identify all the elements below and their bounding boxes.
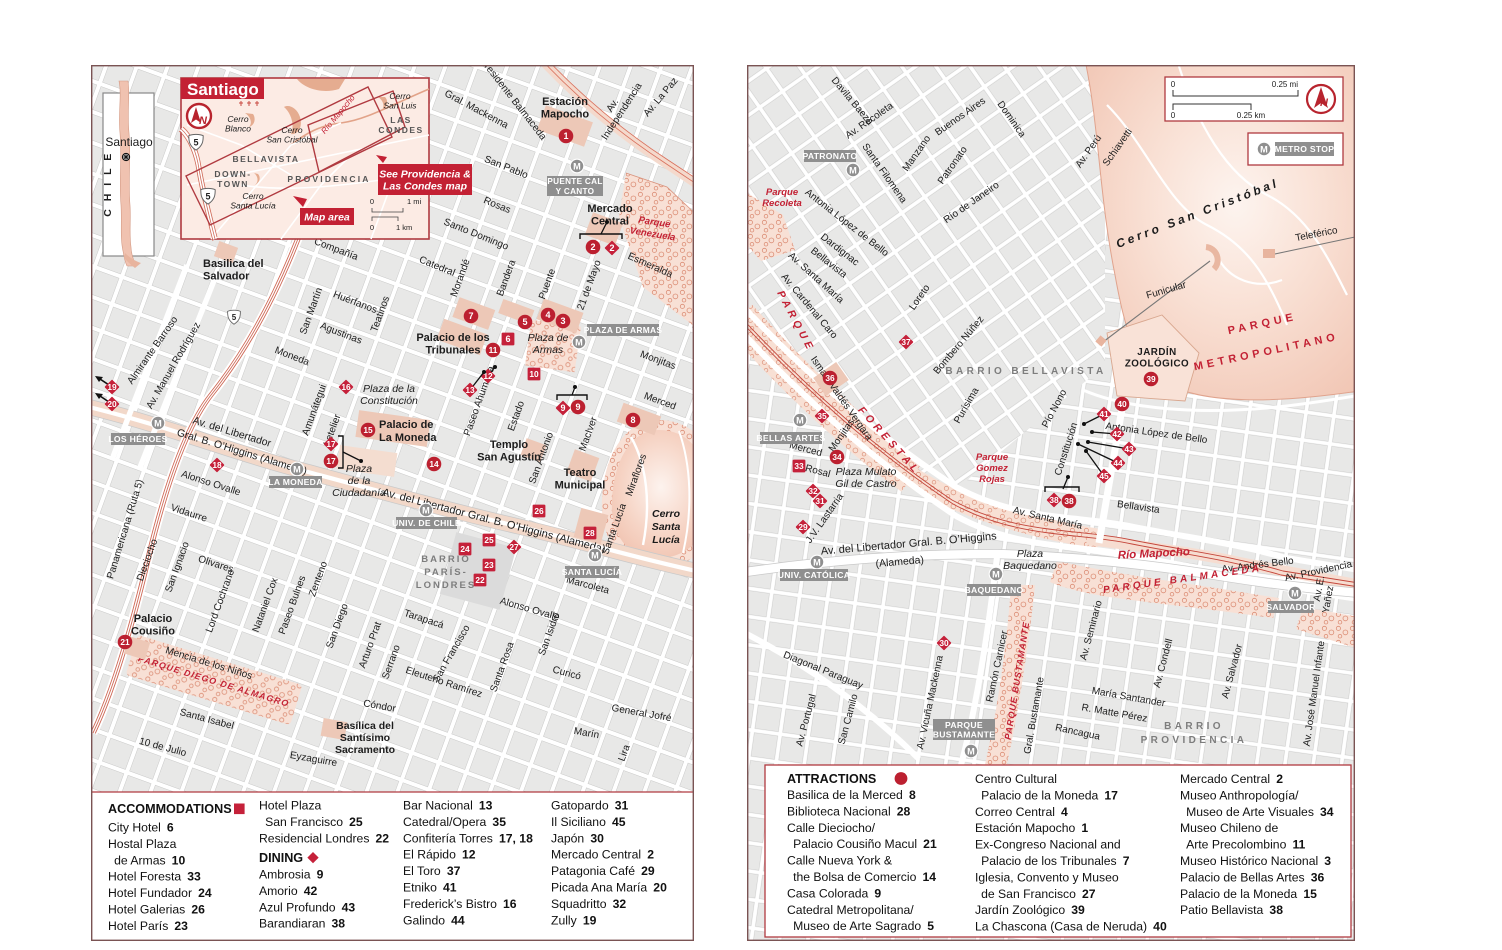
svg-text:Hotel Foresta 33: Hotel Foresta 33 <box>108 870 201 884</box>
svg-text:de Armas 10: de Armas 10 <box>108 853 185 867</box>
svg-text:Catedral/Opera 35: Catedral/Opera 35 <box>403 815 506 829</box>
svg-text:Las Condes map: Las Condes map <box>383 180 468 192</box>
svg-text:14: 14 <box>429 459 439 469</box>
svg-text:El Rápido 12: El Rápido 12 <box>403 848 476 862</box>
svg-text:5: 5 <box>193 137 198 147</box>
svg-text:M: M <box>849 165 857 175</box>
svg-text:M: M <box>796 415 804 425</box>
svg-text:Basílica delSantísimoSacrament: Basílica delSantísimoSacramento <box>335 720 395 756</box>
svg-text:22: 22 <box>475 575 485 585</box>
svg-text:0: 0 <box>370 197 374 206</box>
svg-text:1: 1 <box>563 131 568 141</box>
svg-text:LOS HÉROES: LOS HÉROES <box>108 434 167 444</box>
svg-text:M: M <box>967 746 975 756</box>
svg-text:43: 43 <box>1124 444 1134 454</box>
svg-text:Hostal Plaza: Hostal Plaza <box>108 837 177 851</box>
svg-text:BELLAS ARTES: BELLAS ARTES <box>756 433 825 443</box>
svg-text:Jardín Zoológico 39: Jardín Zoológico 39 <box>975 903 1085 917</box>
svg-text:Basilica de la Merced 8: Basilica de la Merced 8 <box>787 788 916 802</box>
svg-text:0: 0 <box>1171 111 1176 120</box>
svg-text:Hotel Plaza: Hotel Plaza <box>259 799 322 813</box>
svg-text:Ex-Congreso Nacional and: Ex-Congreso Nacional and <box>975 838 1121 852</box>
svg-text:BELLAVISTA: BELLAVISTA <box>232 154 299 164</box>
svg-text:23: 23 <box>484 560 494 570</box>
svg-text:39: 39 <box>1146 374 1156 384</box>
svg-text:17: 17 <box>326 439 336 449</box>
svg-text:Catedral Metropolitana/: Catedral Metropolitana/ <box>787 903 914 917</box>
svg-text:4: 4 <box>545 310 550 320</box>
svg-text:2: 2 <box>590 242 595 252</box>
svg-text:2: 2 <box>609 243 614 253</box>
svg-text:7: 7 <box>468 311 473 321</box>
svg-text:38: 38 <box>1049 495 1059 505</box>
svg-text:Barandiaran 38: Barandiaran 38 <box>259 917 345 931</box>
svg-text:Il Siciliano 45: Il Siciliano 45 <box>551 815 626 829</box>
svg-text:38: 38 <box>1064 496 1074 506</box>
svg-text:Estación Mapocho 1: Estación Mapocho 1 <box>975 821 1088 835</box>
svg-text:Patio Bellavista 38: Patio Bellavista 38 <box>1180 903 1283 917</box>
svg-text:PROVIDENCIA: PROVIDENCIA <box>287 174 370 184</box>
svg-text:35: 35 <box>817 411 827 421</box>
svg-text:Palacio de la Moneda 17: Palacio de la Moneda 17 <box>975 788 1118 802</box>
svg-text:BUSTAMANTE: BUSTAMANTE <box>933 729 996 739</box>
svg-text:M: M <box>591 550 599 560</box>
svg-text:M: M <box>1291 588 1299 598</box>
svg-text:El Toro 37: El Toro 37 <box>403 864 461 878</box>
svg-text:31: 31 <box>815 496 825 506</box>
svg-text:Plaza deArmas: Plaza deArmas <box>528 332 569 356</box>
svg-text:21: 21 <box>120 637 130 647</box>
svg-text:CerroBlanco: CerroBlanco <box>225 114 251 134</box>
svg-text:Palacio deLa Moneda: Palacio deLa Moneda <box>379 419 437 444</box>
svg-text:Y CANTO: Y CANTO <box>556 187 595 196</box>
svg-text:Hotel Fundador 24: Hotel Fundador 24 <box>108 886 212 900</box>
svg-text:32: 32 <box>808 486 818 496</box>
svg-text:Azul Profundo 43: Azul Profundo 43 <box>259 900 355 914</box>
svg-text:29: 29 <box>798 522 808 532</box>
svg-text:Santiago: Santiago <box>105 135 153 149</box>
svg-text:44: 44 <box>1113 458 1123 468</box>
svg-text:40: 40 <box>1117 399 1127 409</box>
svg-text:9: 9 <box>560 403 565 413</box>
svg-text:M: M <box>293 464 301 474</box>
svg-text:Japón 30: Japón 30 <box>551 831 604 845</box>
svg-text:Amorio 42: Amorio 42 <box>259 884 317 898</box>
svg-text:10: 10 <box>529 369 539 379</box>
svg-text:Palacio de la Moneda 15: Palacio de la Moneda 15 <box>1180 887 1317 901</box>
svg-text:ParqueGomezRojas: ParqueGomezRojas <box>976 452 1009 485</box>
svg-text:BARRIO BELLAVISTA: BARRIO BELLAVISTA <box>945 366 1106 377</box>
svg-text:Frederick’s Bistro 16: Frederick’s Bistro 16 <box>403 897 517 911</box>
svg-text:CerroSantaLucía: CerroSantaLucía <box>652 508 681 546</box>
svg-text:Calle Nueva York &: Calle Nueva York & <box>787 854 892 868</box>
svg-text:Zully 19: Zully 19 <box>551 913 597 927</box>
svg-text:Correo Central 4: Correo Central 4 <box>975 805 1068 819</box>
svg-text:Map area: Map area <box>304 211 350 223</box>
svg-text:LA MONEDA: LA MONEDA <box>268 477 322 487</box>
svg-text:19: 19 <box>107 382 117 392</box>
svg-text:28: 28 <box>585 528 595 538</box>
svg-text:EstaciónMapocho: EstaciónMapocho <box>541 96 590 121</box>
svg-text:Calle Dieciocho/: Calle Dieciocho/ <box>787 821 876 835</box>
svg-text:11: 11 <box>489 345 498 355</box>
svg-text:9: 9 <box>575 402 580 412</box>
svg-text:6: 6 <box>505 334 510 344</box>
svg-text:Hotel Galerias 26: Hotel Galerias 26 <box>108 903 205 917</box>
svg-text:PUENTE CAL: PUENTE CAL <box>547 177 602 186</box>
svg-text:Residencial Londres 22: Residencial Londres 22 <box>259 831 389 845</box>
svg-text:BAQUEDANO: BAQUEDANO <box>964 585 1023 595</box>
svg-text:25: 25 <box>484 535 494 545</box>
svg-text:Biblioteca Nacional 28: Biblioteca Nacional 28 <box>787 804 911 818</box>
svg-text:37: 37 <box>901 337 911 347</box>
svg-text:M: M <box>575 337 583 347</box>
svg-text:Palacio Cousiño Macul 21: Palacio Cousiño Macul 21 <box>787 837 937 851</box>
svg-text:Palacio de losTribunales: Palacio de losTribunales <box>416 332 489 357</box>
svg-text:Casa Colorada 9: Casa Colorada 9 <box>787 886 881 900</box>
svg-text:SALVADOR: SALVADOR <box>1266 602 1316 612</box>
svg-text:Museo Chileno de: Museo Chileno de <box>1180 821 1278 835</box>
svg-text:27: 27 <box>509 542 519 552</box>
svg-text:Gatopardo 31: Gatopardo 31 <box>551 799 628 813</box>
svg-text:0: 0 <box>370 223 374 232</box>
svg-text:UNIV. DE CHILE: UNIV. DE CHILE <box>392 518 461 528</box>
svg-text:18: 18 <box>212 460 222 470</box>
svg-text:ATTRACTIONS: ATTRACTIONS <box>787 772 876 786</box>
svg-text:N: N <box>199 115 208 127</box>
svg-text:5: 5 <box>522 317 527 327</box>
svg-text:0.25 mi: 0.25 mi <box>1272 80 1298 89</box>
svg-text:8: 8 <box>630 415 635 425</box>
svg-text:Confitería Torres 17, 18: Confitería Torres 17, 18 <box>403 831 533 845</box>
svg-text:Palacio de los Tribunales 7: Palacio de los Tribunales 7 <box>975 854 1130 868</box>
svg-text:Santiago: Santiago <box>187 80 259 99</box>
svg-text:BARRIOPARÍS-LONDRES: BARRIOPARÍS-LONDRES <box>416 554 476 591</box>
svg-text:36: 36 <box>825 373 835 383</box>
svg-text:Mercado Central 2: Mercado Central 2 <box>1180 772 1283 786</box>
svg-text:M: M <box>422 505 430 515</box>
svg-text:PATRONATO: PATRONATO <box>802 151 857 161</box>
svg-text:the Bolsa de Comercio 14: the Bolsa de Comercio 14 <box>787 870 936 884</box>
svg-text:16: 16 <box>341 382 351 392</box>
svg-text:PLAZA DE ARMAS: PLAZA DE ARMAS <box>584 325 663 335</box>
svg-text:M: M <box>813 557 821 567</box>
svg-text:30: 30 <box>939 638 949 648</box>
svg-text:Patagonia Café 29: Patagonia Café 29 <box>551 864 655 878</box>
svg-text:Mercado Central 2: Mercado Central 2 <box>551 848 654 862</box>
svg-text:Ambrosia 9: Ambrosia 9 <box>259 868 324 882</box>
svg-text:de San Francisco 27: de San Francisco 27 <box>975 887 1096 901</box>
svg-text:La Chascona (Casa de Neruda) 4: La Chascona (Casa de Neruda) 40 <box>975 920 1167 934</box>
svg-text:41: 41 <box>1099 409 1109 419</box>
svg-text:Arte Precolombino 11: Arte Precolombino 11 <box>1180 838 1306 852</box>
svg-text:5: 5 <box>205 191 210 201</box>
svg-text:Palacio de Bellas Artes 36: Palacio de Bellas Artes 36 <box>1180 870 1325 884</box>
svg-text:24: 24 <box>460 544 470 554</box>
svg-text:3: 3 <box>560 316 565 326</box>
svg-text:1 mi: 1 mi <box>407 197 422 206</box>
svg-text:M: M <box>992 569 1000 579</box>
svg-text:Etniko 41: Etniko 41 <box>403 881 457 895</box>
svg-text:45: 45 <box>1099 471 1109 481</box>
svg-text:17: 17 <box>326 456 336 466</box>
svg-text:0: 0 <box>1171 80 1176 89</box>
svg-text:Centro Cultural: Centro Cultural <box>975 772 1057 786</box>
svg-text:15: 15 <box>363 425 373 435</box>
svg-text:Museo de Arte Visuales 34: Museo de Arte Visuales 34 <box>1180 805 1334 819</box>
svg-text:C H I L E: C H I L E <box>102 151 114 216</box>
svg-text:San Francisco 25: San Francisco 25 <box>259 815 363 829</box>
svg-text:0.25 km: 0.25 km <box>1237 111 1266 120</box>
svg-text:Picada Ana María 20: Picada Ana María 20 <box>551 881 667 895</box>
svg-text:Squadritto 32: Squadritto 32 <box>551 897 626 911</box>
svg-text:20: 20 <box>107 399 117 409</box>
svg-text:See Providencia &: See Providencia & <box>379 168 471 180</box>
svg-text:Galindo 44: Galindo 44 <box>403 913 465 927</box>
svg-text:M: M <box>1260 144 1268 154</box>
svg-text:City Hotel 6: City Hotel 6 <box>108 821 174 835</box>
svg-text:MercadoCentral: MercadoCentral <box>587 203 633 228</box>
svg-text:Bar Nacional 13: Bar Nacional 13 <box>403 799 493 813</box>
svg-text:Iglesia, Convento y Museo: Iglesia, Convento y Museo <box>975 870 1119 884</box>
svg-text:Museo Histórico Nacional 3: Museo Histórico Nacional 3 <box>1180 854 1331 868</box>
svg-text:13: 13 <box>465 385 475 395</box>
svg-text:1 km: 1 km <box>396 223 412 232</box>
svg-text:N: N <box>1320 97 1329 109</box>
svg-text:DOWN-TOWN: DOWN-TOWN <box>214 169 251 189</box>
svg-text:METRO STOP: METRO STOP <box>1275 144 1335 154</box>
svg-text:SANTA LUCÍA: SANTA LUCÍA <box>562 567 623 577</box>
svg-text:UNIV. CATÓLICA: UNIV. CATÓLICA <box>778 569 850 580</box>
svg-text:ACCOMMODATIONS: ACCOMMODATIONS <box>108 802 232 816</box>
svg-text:Museo Anthropología/: Museo Anthropología/ <box>1180 788 1299 802</box>
svg-text:26: 26 <box>534 506 544 516</box>
svg-text:M: M <box>573 161 581 171</box>
svg-text:Hotel París 23: Hotel París 23 <box>108 919 188 933</box>
svg-text:33: 33 <box>794 461 804 471</box>
svg-text:PalacioCousiño: PalacioCousiño <box>131 613 175 638</box>
svg-text:42: 42 <box>1112 429 1122 439</box>
svg-text:5: 5 <box>232 313 237 322</box>
svg-text:ParqueRecoleta: ParqueRecoleta <box>762 187 802 209</box>
svg-text:34: 34 <box>832 452 842 462</box>
svg-text:Plaza MulatoGil de Castro: Plaza MulatoGil de Castro <box>835 466 896 490</box>
svg-text:PARQUE: PARQUE <box>945 720 983 730</box>
svg-text:Museo de Arte Sagrado 5: Museo de Arte Sagrado 5 <box>787 919 934 933</box>
svg-text:Plaza de laConstitución: Plaza de laConstitución <box>360 383 418 407</box>
svg-text:M: M <box>154 418 162 428</box>
svg-text:DINING: DINING <box>259 851 303 865</box>
